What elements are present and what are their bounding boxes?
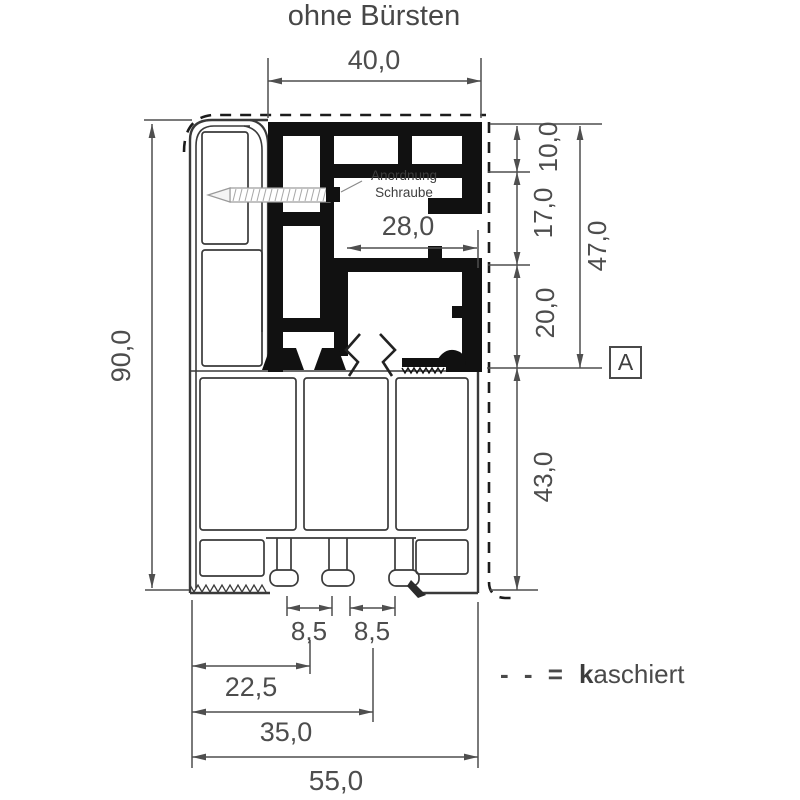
- dim-upper-total: 47,0: [582, 186, 612, 306]
- dim-total-height: 90,0: [106, 296, 136, 416]
- chamber-lower-1: [200, 378, 296, 530]
- dim-total-width: 55,0: [276, 766, 396, 796]
- serration: [190, 585, 266, 592]
- chamber-bottom-right: [416, 540, 468, 574]
- foot-gasket-tab: [407, 580, 426, 598]
- glazing-clip: [346, 334, 395, 376]
- technical-drawing-canvas: ohne Bürsten 40,0 28,0 Anordnung Schraub…: [0, 0, 800, 800]
- chamber-left-mid: [202, 250, 262, 366]
- chamber-lower-2: [304, 378, 388, 530]
- kaschiert-legend: - - = kaschiert: [500, 659, 684, 690]
- foot-mid: [322, 570, 354, 586]
- gasket-lip: [434, 350, 466, 366]
- chamber-lower-3: [396, 378, 468, 530]
- screw-note-line1: Anordnung: [334, 168, 474, 184]
- dim-top-width: 40,0: [314, 45, 434, 75]
- dim-inner-width: 28,0: [348, 211, 468, 241]
- dim-slot-right: 8,5: [312, 616, 432, 646]
- dim-seg-low: 20,0: [530, 253, 560, 373]
- dim-offset-small: 22,5: [191, 672, 311, 702]
- legend-term: kaschiert: [579, 659, 685, 690]
- dim-lower-height: 43,0: [528, 417, 558, 537]
- chamber-bottom-left: [200, 540, 264, 576]
- drawing-title: ohne Bürsten: [214, 0, 534, 32]
- legend-dash-symbol: - - =: [500, 659, 567, 690]
- section-marker-a: A: [609, 346, 642, 379]
- legend-term-highlight: k: [579, 659, 593, 689]
- section-marker-letter: A: [618, 349, 633, 376]
- screw-note-line2: Schraube: [334, 185, 474, 201]
- dim-offset-large: 35,0: [226, 717, 346, 747]
- legend-term-rest: aschiert: [593, 659, 684, 689]
- foot-left: [270, 570, 298, 586]
